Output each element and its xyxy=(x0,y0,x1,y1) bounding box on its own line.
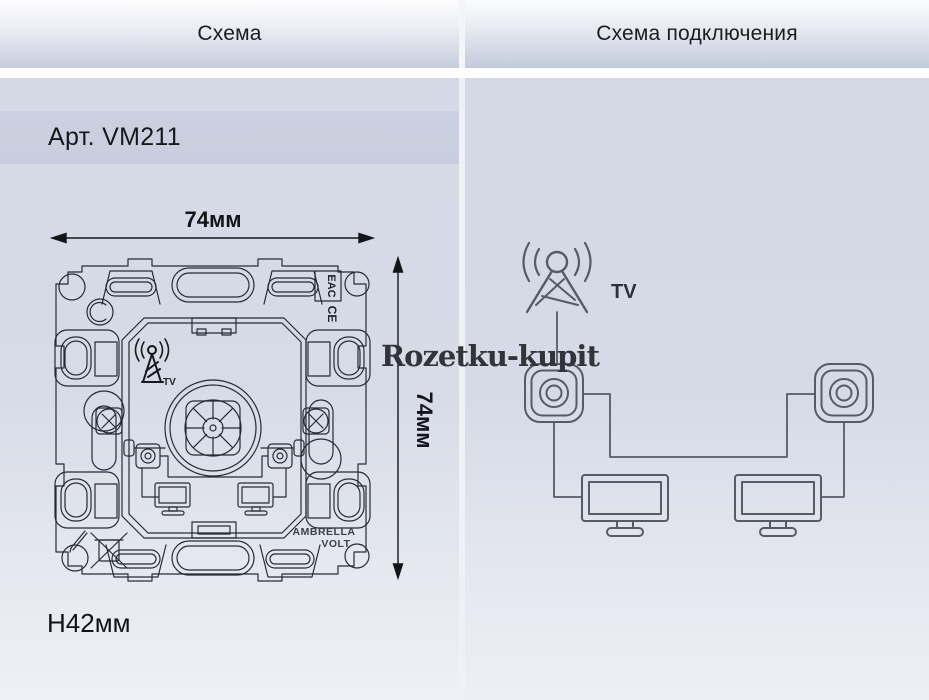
header-divider xyxy=(0,68,929,78)
product-spec-page: Схема Схема подключения Арт. VM211 74мм … xyxy=(0,0,929,700)
left-keyhole xyxy=(84,391,124,431)
left-tv-wire xyxy=(142,468,158,497)
right-tv-cable xyxy=(821,422,844,497)
tv-monitor-right xyxy=(735,475,821,536)
mini-tv-right xyxy=(238,483,273,515)
section-header-row: Схема Схема подключения xyxy=(0,0,929,68)
tab-scheme: Схема xyxy=(0,0,459,68)
module-frame xyxy=(122,318,306,538)
brand-line-2: VOLT xyxy=(321,538,350,550)
tab-scheme-label: Схема xyxy=(197,22,261,46)
connection-diagram: TV xyxy=(465,200,929,550)
depth-dimension-label: H42мм xyxy=(47,608,130,639)
corner-hole-top-left xyxy=(59,274,85,300)
right-tv-wire xyxy=(273,468,286,497)
brand-line-1: AMBRELLA xyxy=(293,526,356,538)
width-dimension-label: 74мм xyxy=(184,207,241,232)
article-band: Арт. VM211 xyxy=(0,111,459,164)
top-right-claw xyxy=(264,271,322,304)
eac-mark: EAC xyxy=(325,274,337,297)
watermark: Rozetku-kupit xyxy=(381,339,599,373)
antenna-icon xyxy=(524,243,591,312)
module-antenna-icon xyxy=(136,339,169,382)
tv-connector xyxy=(165,380,261,476)
top-left-claw xyxy=(102,271,160,304)
tab-connection-scheme: Схема подключения xyxy=(465,0,929,68)
tv-monitor-left xyxy=(582,475,668,536)
dimension-height xyxy=(394,258,403,578)
mechanism-technical-drawing: 74мм 74мм xyxy=(40,200,445,600)
right-keyhole xyxy=(301,439,341,479)
corner-hole-bottom-left xyxy=(62,545,88,571)
left-tv-cable xyxy=(554,422,582,497)
height-dimension-label: 74мм xyxy=(412,391,437,448)
tv-socket-right xyxy=(815,364,873,422)
article-number: Арт. VM211 xyxy=(48,123,181,152)
ce-mark: CE xyxy=(325,306,339,323)
antenna-tv-label: TV xyxy=(611,281,637,303)
mini-tv-left xyxy=(155,483,190,515)
right-screw-icon xyxy=(303,408,329,434)
socket-link-cable xyxy=(583,394,815,457)
module-top-latch xyxy=(192,318,236,333)
dimension-width xyxy=(52,234,373,243)
tab-connection-scheme-label: Схема подключения xyxy=(596,22,798,46)
module-antenna-label: TV xyxy=(163,377,176,388)
